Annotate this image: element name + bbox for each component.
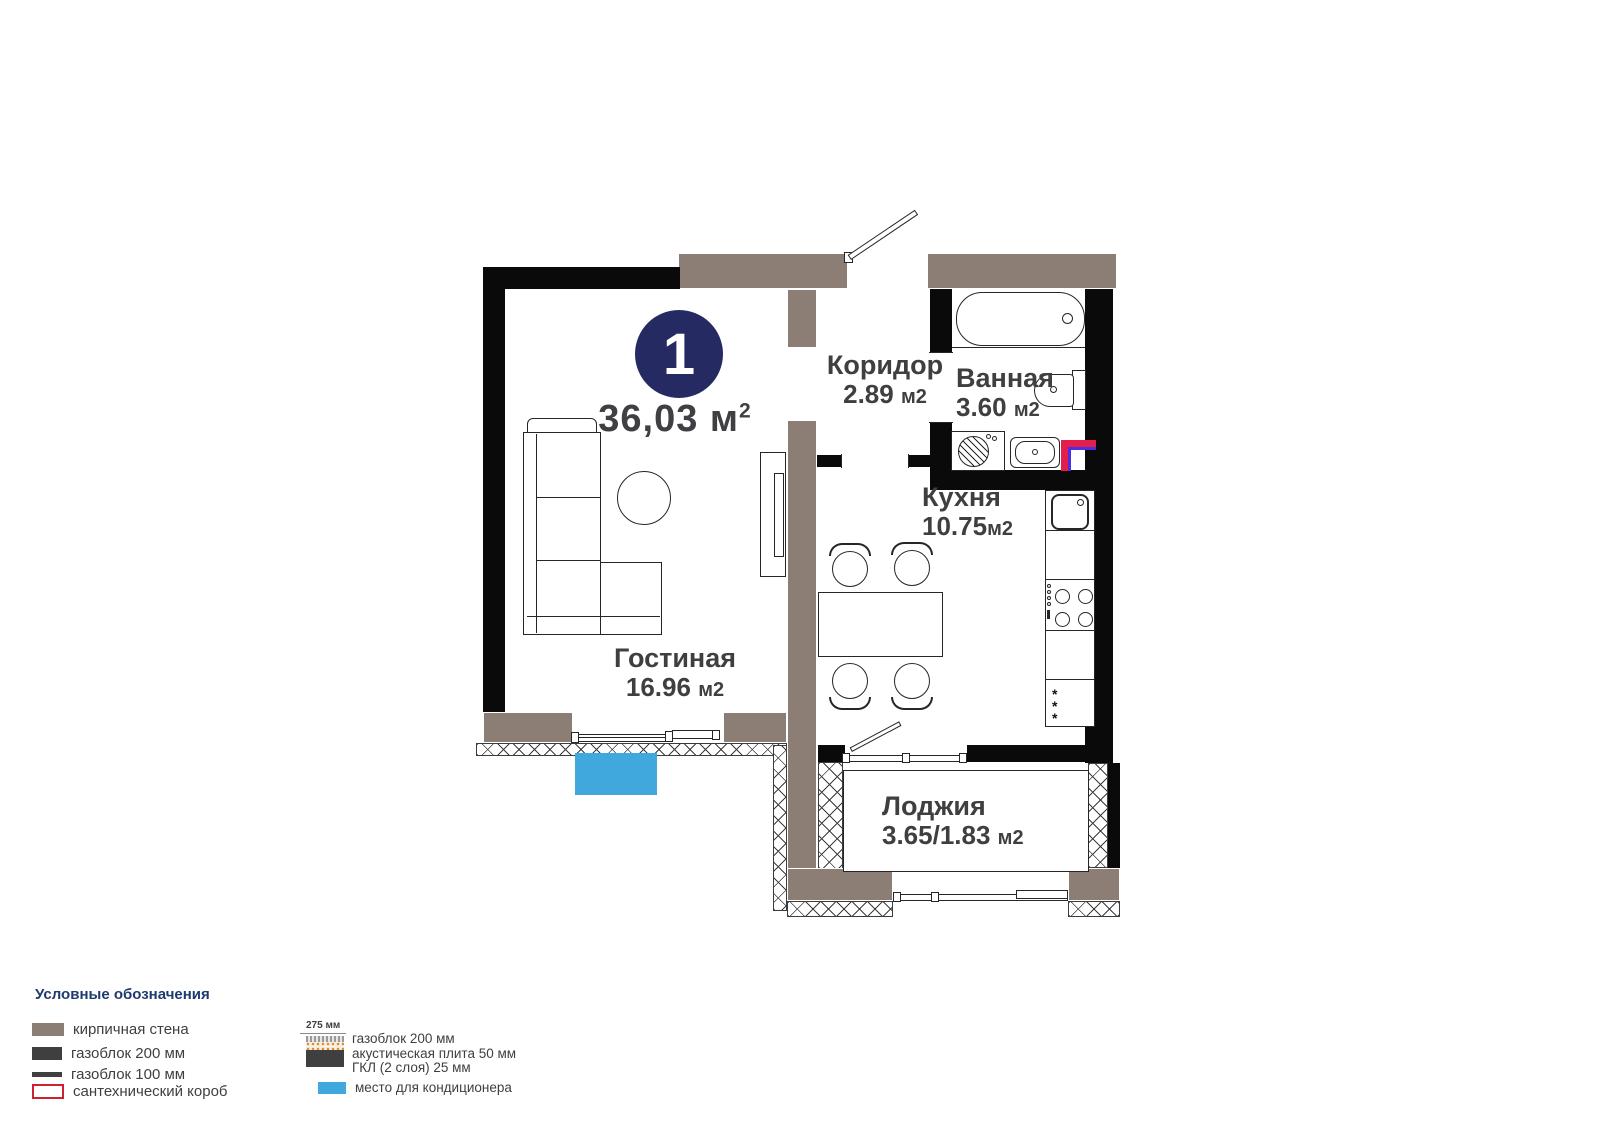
sink-drain: [1032, 449, 1038, 455]
window-mullion: [893, 892, 901, 902]
counter-divider: [1045, 630, 1095, 631]
bathtub-drain: [1062, 313, 1073, 324]
window-mullion: [959, 753, 967, 763]
washer-control: [986, 434, 991, 439]
acoustic-layer: [306, 1042, 344, 1050]
brick-wall: [678, 253, 848, 289]
wall: [909, 455, 935, 467]
room-name: Коридор: [800, 350, 970, 380]
stove-knob-bar: [1047, 610, 1050, 619]
layered-wall-icon: [306, 1036, 344, 1067]
room-name: Гостиная: [560, 643, 790, 673]
sofa-line: [536, 434, 537, 633]
brick-wall: [787, 289, 817, 348]
brick-wall: [787, 868, 893, 901]
kitchen-door-opening: [841, 454, 909, 468]
legend-item-gasblock-200: газоблок 200 мм: [32, 1045, 185, 1061]
sofa-line: [537, 560, 601, 561]
gkl-layer: [306, 1050, 344, 1067]
chair: [894, 663, 930, 699]
ac-unit-place: [575, 753, 657, 795]
faucet: [1077, 499, 1084, 506]
entrance-door-leaf: [848, 210, 919, 260]
dimension-line: [300, 1033, 346, 1034]
window-glazing: [578, 737, 669, 738]
room-label-kitchen: Кухня 10.75м2: [922, 482, 1072, 541]
insulation-hatch: [787, 901, 893, 917]
stove-knob: [1047, 590, 1051, 594]
window-mullion: [842, 753, 850, 763]
dining-table: [818, 592, 943, 657]
living-room-window: [575, 734, 672, 742]
chair: [891, 697, 933, 710]
wall: [483, 267, 680, 289]
wall: [817, 455, 841, 467]
chair: [832, 663, 868, 699]
insulation-hatch: [1088, 763, 1108, 868]
legend-item-brick-wall: кирпичная стена: [32, 1021, 189, 1037]
window-mullion: [712, 730, 720, 740]
sofa: [523, 432, 601, 635]
floorplan-canvas: * * * 1 36,03 м2 Гостиная 16.96 м2: [0, 0, 1600, 1131]
stove-burner: [1078, 612, 1093, 627]
stove-burner: [1055, 589, 1070, 604]
room-label-bathroom: Ванная 3.60 м2: [956, 363, 1086, 422]
stove-burner: [1078, 589, 1093, 604]
gasblock-200-swatch: [32, 1047, 62, 1060]
total-area-label: 36,03 м2: [560, 398, 790, 441]
chair: [894, 550, 930, 586]
room-name: Кухня: [922, 482, 1072, 512]
loggia-window-pane: [1016, 890, 1068, 899]
sofa-line: [527, 616, 660, 617]
layered-wall-text: газоблок 200 мм акустическая плита 50 мм…: [352, 1033, 516, 1075]
room-name: Ванная: [956, 363, 1086, 393]
room-label-loggia: Лоджия 3.65/1.83 м2: [882, 791, 1082, 850]
brick-wall: [787, 420, 817, 870]
brick-wall: [723, 712, 787, 743]
window-mullion: [665, 731, 673, 742]
legend-item-ac-place: место для кондиционера: [318, 1080, 512, 1096]
sofa-chaise: [600, 562, 662, 635]
layered-wall-dimension: 275 мм: [306, 1020, 340, 1031]
wall: [967, 745, 1088, 762]
plumbing-box: [1061, 440, 1068, 471]
room-name: Лоджия: [882, 791, 1082, 821]
bathtub-platform-line: [952, 347, 1085, 348]
wall: [930, 289, 952, 353]
gasblock-100-swatch: [32, 1072, 62, 1077]
chair: [832, 551, 868, 587]
window-mullion: [571, 732, 579, 743]
stove-knob: [1047, 596, 1051, 600]
brick-wall: [927, 253, 1117, 289]
legend-item-gasblock-100: газоблок 100 мм: [32, 1066, 185, 1082]
coffee-table: [617, 471, 671, 525]
insulation-hatch: [773, 745, 787, 911]
brick-wall-swatch: [32, 1023, 64, 1036]
fridge-marker: * * *: [1052, 688, 1068, 728]
room-label-corridor: Коридор 2.89 м2: [800, 350, 970, 409]
balcony-door-leaf: [850, 721, 902, 752]
legend-title: Условные обозначения: [35, 986, 210, 1003]
room-label-living: Гостиная 16.96 м2: [560, 643, 790, 702]
wall: [1108, 763, 1120, 868]
window-mullion: [931, 892, 939, 902]
wall: [818, 745, 845, 762]
apartment-number: 1: [663, 321, 695, 388]
tv: [774, 473, 784, 557]
washer-control: [992, 436, 997, 441]
wall: [483, 267, 505, 712]
insulation-hatch: [1068, 901, 1120, 917]
chair: [829, 697, 871, 710]
plumbing-box-swatch: [32, 1084, 64, 1099]
legend-item-plumbing-box: сантехнический короб: [32, 1083, 228, 1099]
brick-wall: [1068, 868, 1120, 901]
window-mullion: [902, 753, 910, 763]
counter-divider: [1045, 579, 1095, 580]
counter-divider: [1045, 679, 1095, 680]
insulation-hatch: [818, 762, 843, 869]
plumbing-box: [1068, 450, 1071, 471]
stove-burner: [1055, 612, 1070, 627]
stove-knob: [1047, 602, 1051, 606]
washing-machine-drum: [958, 436, 989, 467]
apartment-number-badge: 1: [635, 310, 723, 398]
sofa-line: [537, 497, 601, 498]
ac-place-swatch: [318, 1082, 346, 1094]
stove-knob: [1047, 584, 1051, 588]
brick-wall: [483, 712, 573, 743]
